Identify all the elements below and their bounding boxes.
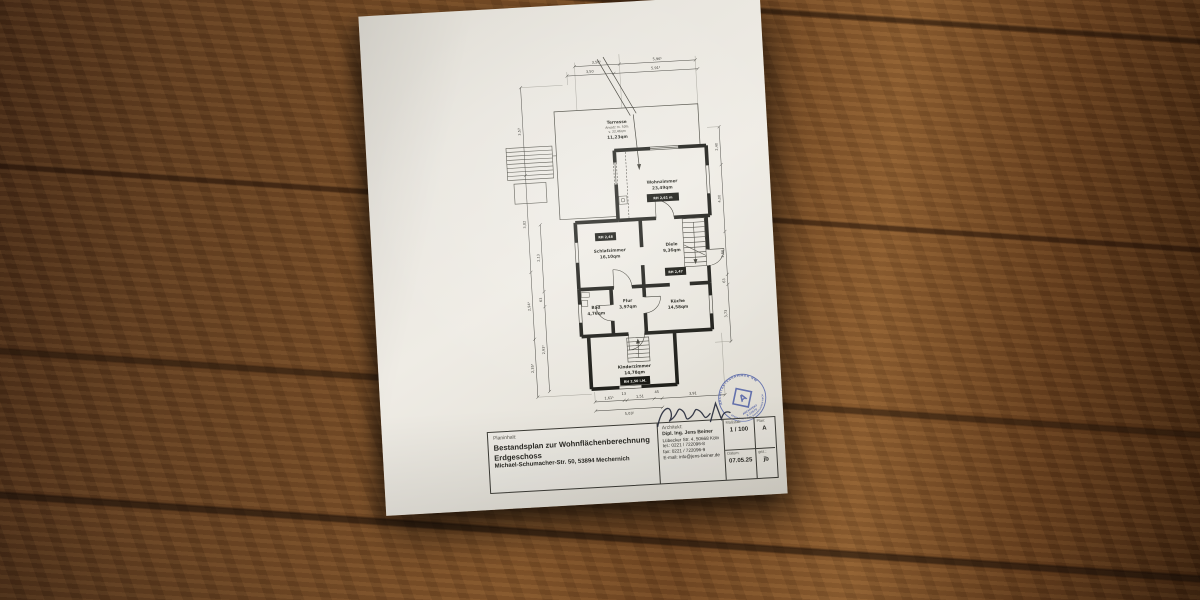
- dim-bottom-total: 5,03⁵: [625, 411, 635, 416]
- dim-right-3: 2,66: [720, 250, 724, 258]
- date-label: Datum:: [727, 451, 739, 456]
- paper-document: Terrasse Ansatz m. 50% v. 22,46qm 11,23q…: [358, 0, 787, 516]
- dim-bottom-5: 3,91: [689, 391, 697, 395]
- dim-top-inner-2: 5,91⁵: [651, 66, 661, 71]
- schlafzimmer-height-text: RH 2,48: [598, 235, 613, 240]
- room-label-kueche: Küche: [670, 298, 685, 304]
- room-label-diele: Diele: [665, 241, 677, 247]
- dim-right-5: 3,73: [724, 310, 728, 318]
- kueche-area: 14,58qm: [668, 304, 689, 310]
- scale-value: 1 / 100: [730, 426, 749, 433]
- date-value: 07.05.25: [729, 457, 753, 464]
- title-block-content-cell: Planinhalt: Bestandsplan zur Wohnflächen…: [488, 424, 661, 493]
- dim-right-4: 63: [722, 278, 726, 283]
- windows: [570, 144, 721, 391]
- stamp-logo-letter: A: [738, 393, 749, 405]
- staircase-diele: [682, 218, 707, 267]
- scale-label: Maßstab:: [725, 420, 741, 425]
- date-cell: Datum: 07.05.25: [725, 448, 757, 480]
- dim-left-inner-2: 63: [539, 298, 543, 303]
- dim-right-2: 4,00: [717, 195, 721, 203]
- dim-left-inner-1: 2,13: [536, 254, 540, 262]
- staircase-basement: [627, 337, 650, 362]
- title-block-meta: Maßstab: 1 / 100 Plan: A Datum: 07.05.25…: [723, 417, 777, 480]
- dim-bottom-4: 45: [654, 390, 659, 394]
- dim-top-outer-2: 5,96⁵: [652, 57, 662, 62]
- wooden-table-background: Terrasse Ansatz m. 50% v. 22,46qm 11,23q…: [0, 0, 1200, 600]
- drawn-by-value: jb: [763, 456, 769, 462]
- plan-number-label: Plan:: [756, 419, 765, 423]
- room-label-flur: Flur: [623, 298, 634, 304]
- room-label-kinderzimmer: Kinderzimmer: [618, 363, 652, 370]
- terrace-outline: [554, 104, 704, 220]
- bad-area: 4,76qm: [587, 310, 606, 316]
- room-label-schlafzimmer: Schlafzimmer: [594, 247, 627, 254]
- dim-left-inner-3: 2,93⁵: [541, 344, 546, 354]
- scale-cell: Maßstab: 1 / 100: [723, 418, 755, 450]
- dim-left-outer-2: 3,82: [523, 221, 527, 229]
- terrasse-area: 11,23qm: [607, 134, 628, 140]
- plan-number-value: A: [762, 425, 767, 431]
- diele-area: 9,36qm: [663, 247, 682, 253]
- dim-left-outer-4: 2,35⁵: [530, 363, 535, 373]
- exterior-ramp: [597, 55, 641, 172]
- exterior-stairs: [506, 146, 559, 205]
- dim-top-inner-1: 3,50: [586, 70, 594, 74]
- drawn-by-label: gez.:: [758, 450, 766, 454]
- title-block-architect-cell: Architekt: Dipl. Ing. Jens Beiner Lübeck…: [658, 420, 727, 484]
- room-label-bad: Bad: [591, 305, 600, 310]
- dim-right-1: 2,40: [714, 143, 718, 151]
- kueche-height-text: RH 2,47: [668, 269, 683, 274]
- plan-number-cell: Plan: A: [753, 417, 775, 448]
- room-label-wohnzimmer: Wohnzimmer: [647, 178, 679, 185]
- dim-bottom-2: 13: [621, 392, 626, 396]
- drawn-by-cell: gez.: jb: [755, 447, 777, 478]
- wohnzimmer-area: 23,49qm: [652, 184, 673, 190]
- dim-bottom-1: 1,61⁵: [604, 396, 614, 401]
- dim-bottom-3: 1,51: [636, 394, 644, 398]
- flur-area: 3,97qm: [619, 303, 638, 309]
- kinderzimmer-area: 14,78qm: [624, 369, 645, 375]
- dim-left-outer-3: 2,94⁵: [527, 301, 532, 311]
- schlafzimmer-area: 16,10qm: [600, 253, 621, 259]
- dim-left-outer-1: 3,57: [517, 128, 521, 136]
- dim-top-outer-1: 3,50⁵: [592, 60, 602, 65]
